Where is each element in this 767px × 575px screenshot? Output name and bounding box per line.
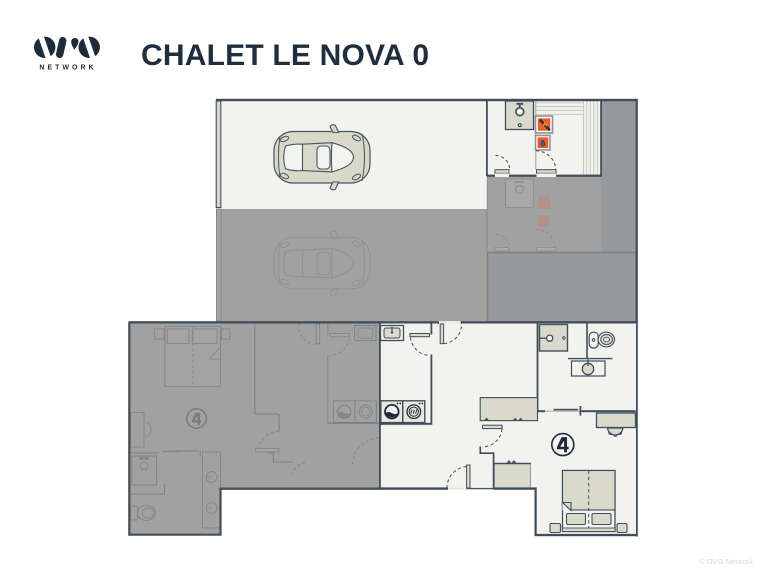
svg-text:NETWORK: NETWORK bbox=[39, 64, 96, 71]
svg-text:© OVO Network: © OVO Network bbox=[699, 557, 753, 566]
svg-text:CHALET LE NOVA 0: CHALET LE NOVA 0 bbox=[141, 39, 429, 72]
